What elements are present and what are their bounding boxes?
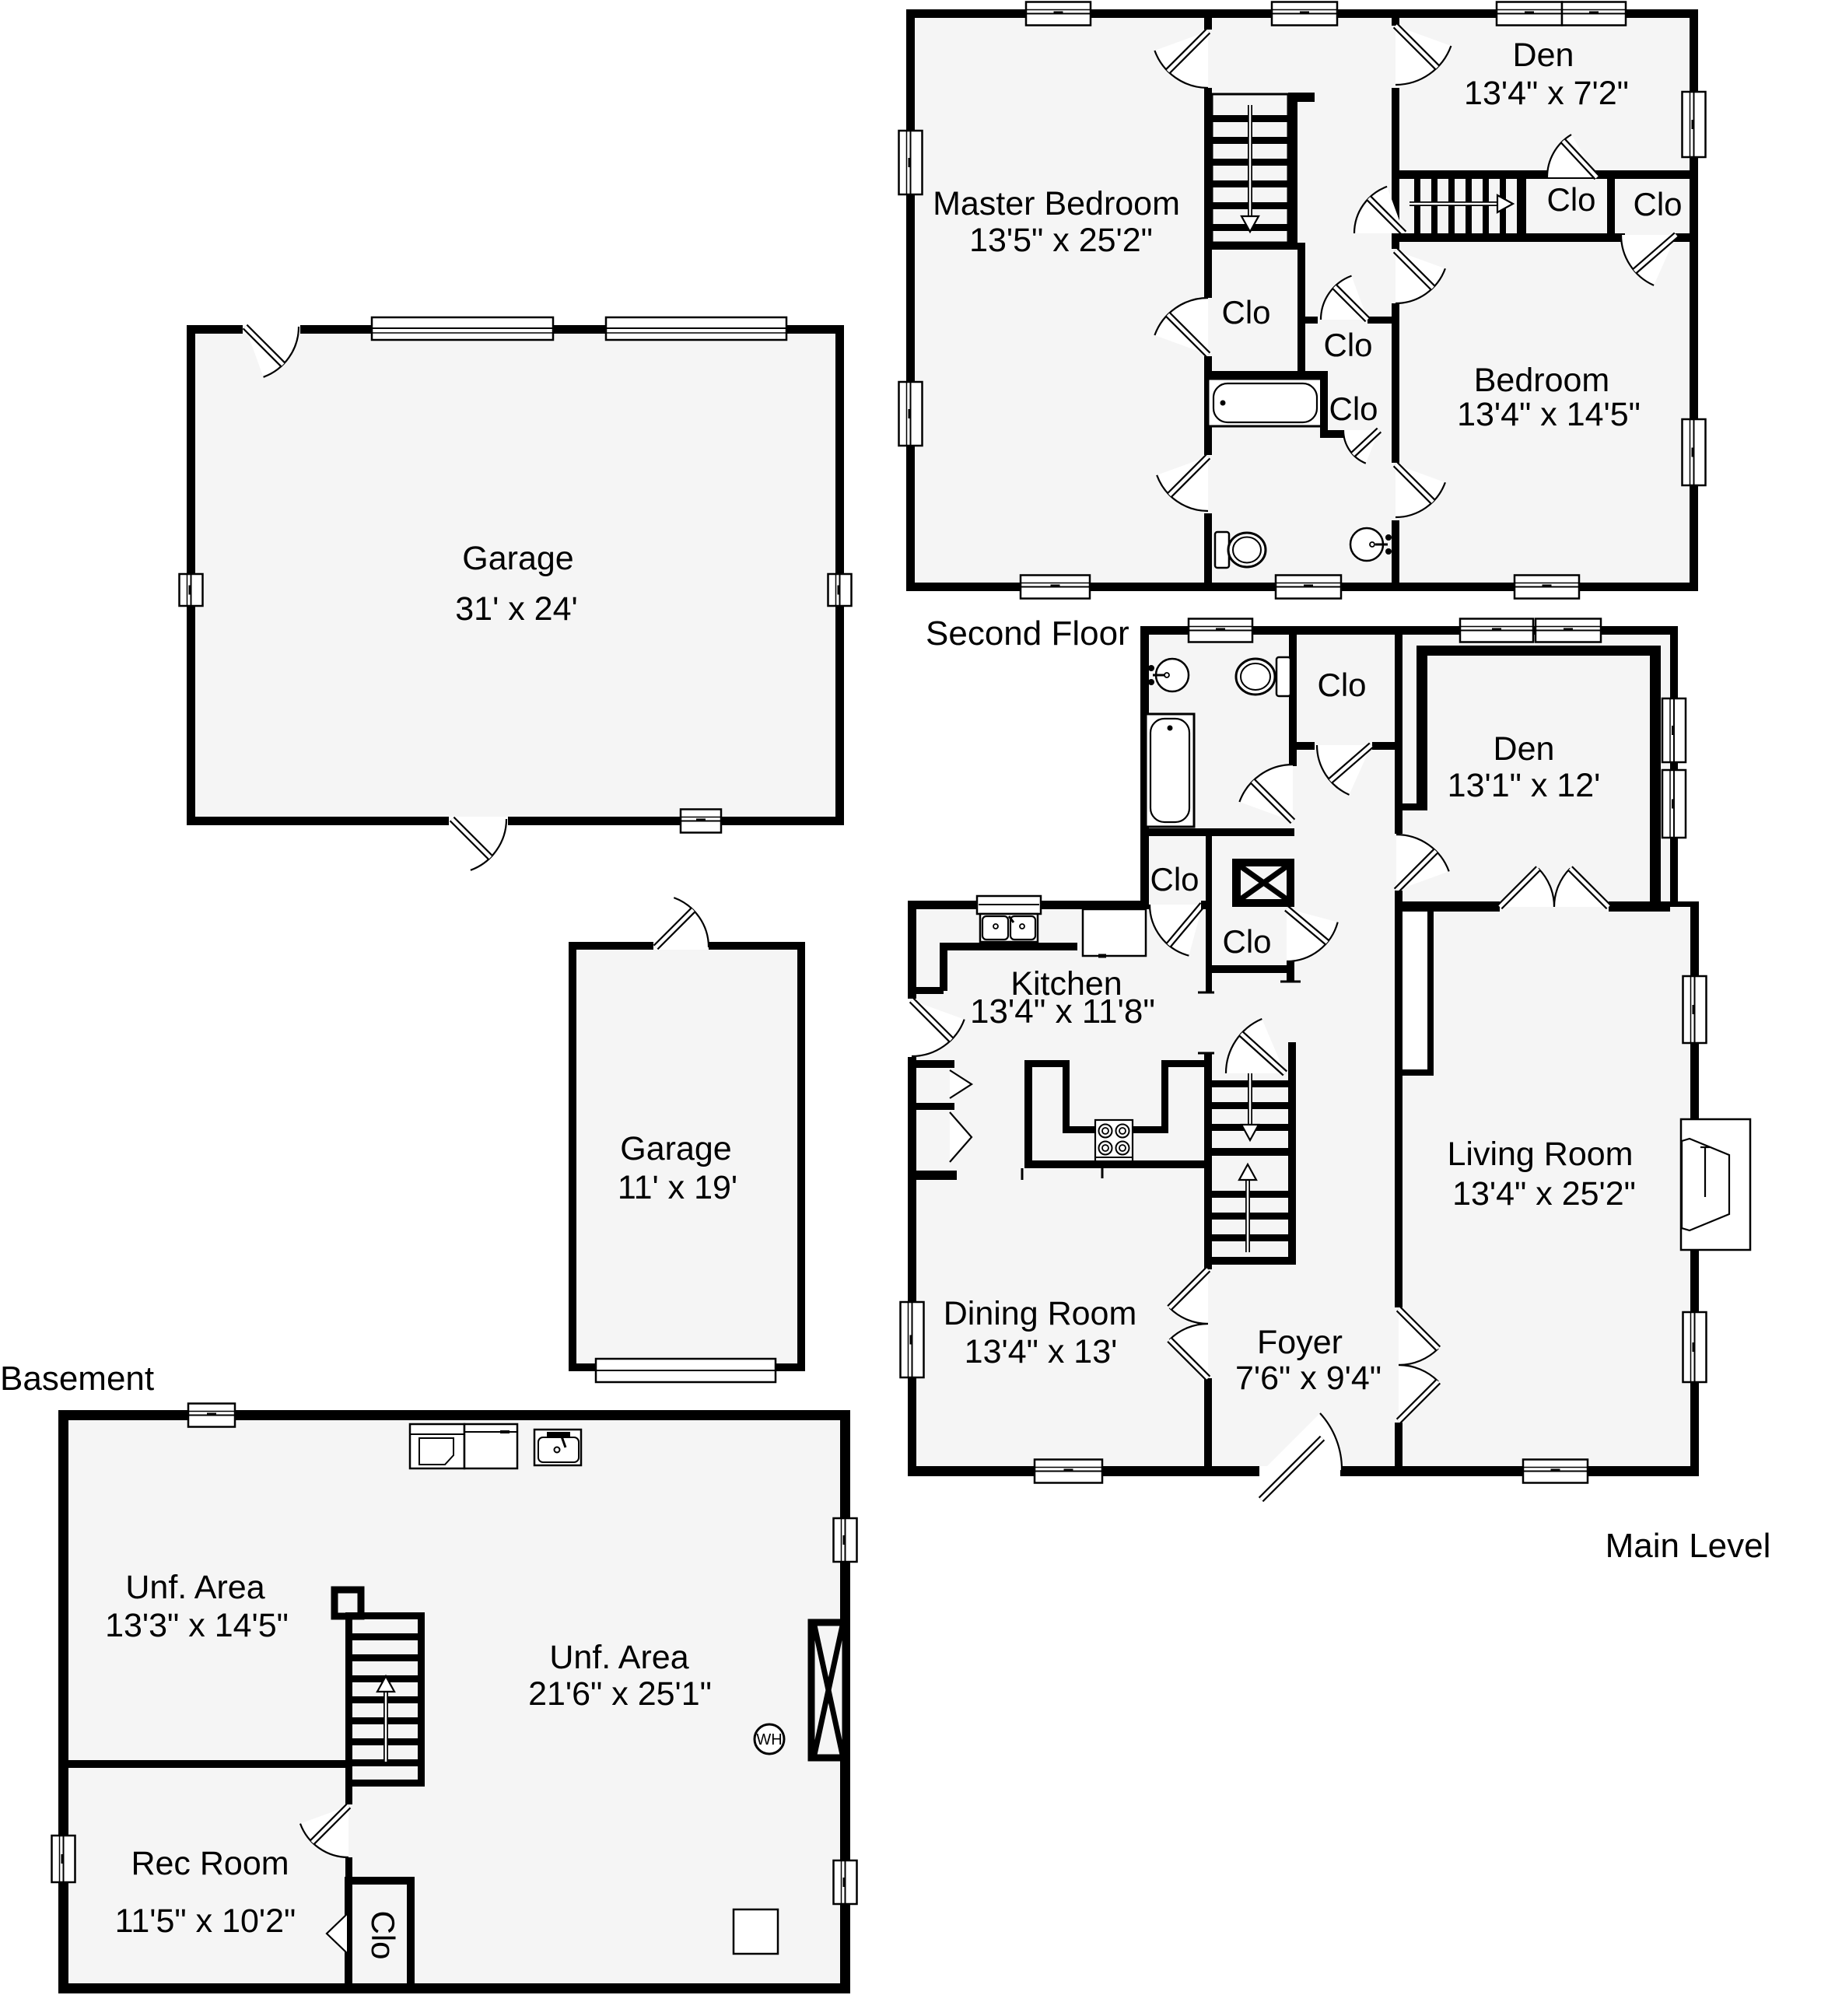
svg-text:Basement: Basement bbox=[0, 1360, 154, 1398]
svg-text:Second Floor: Second Floor bbox=[926, 614, 1129, 653]
svg-text:Living Room: Living Room bbox=[1448, 1136, 1634, 1173]
svg-text:Dining Room: Dining Room bbox=[944, 1295, 1137, 1332]
svg-text:Bedroom: Bedroom bbox=[1474, 362, 1609, 399]
svg-text:Clo: Clo bbox=[1222, 923, 1271, 960]
svg-text:Den: Den bbox=[1494, 730, 1555, 768]
svg-text:Clo: Clo bbox=[365, 1910, 401, 1959]
svg-text:Unf. Area: Unf. Area bbox=[549, 1639, 688, 1676]
svg-text:Clo: Clo bbox=[1633, 186, 1682, 222]
svg-text:11' x 19': 11' x 19' bbox=[618, 1169, 737, 1206]
svg-text:Clo: Clo bbox=[1546, 181, 1595, 218]
svg-text:WH: WH bbox=[756, 1731, 782, 1748]
svg-text:Clo: Clo bbox=[1323, 327, 1372, 363]
svg-text:13'5" x 25'2": 13'5" x 25'2" bbox=[969, 222, 1153, 259]
svg-text:31' x 24': 31' x 24' bbox=[455, 590, 577, 628]
svg-text:7'6" x 9'4": 7'6" x 9'4" bbox=[1235, 1360, 1382, 1397]
svg-text:Den: Den bbox=[1513, 37, 1574, 74]
svg-text:13'4" x 11'8": 13'4" x 11'8" bbox=[970, 992, 1155, 1031]
svg-text:13'4" x 25'2": 13'4" x 25'2" bbox=[1452, 1175, 1636, 1213]
svg-text:Clo: Clo bbox=[1150, 861, 1199, 898]
svg-text:13'3" x 14'5": 13'3" x 14'5" bbox=[105, 1607, 289, 1644]
svg-text:Clo: Clo bbox=[1329, 390, 1378, 427]
svg-text:Garage: Garage bbox=[462, 540, 573, 577]
svg-text:Master Bedroom: Master Bedroom bbox=[933, 185, 1180, 222]
svg-text:Clo: Clo bbox=[1317, 667, 1366, 703]
svg-text:13'4" x 14'5": 13'4" x 14'5" bbox=[1457, 396, 1641, 433]
svg-text:13'4" x 13': 13'4" x 13' bbox=[965, 1333, 1118, 1370]
svg-text:Main Level: Main Level bbox=[1606, 1527, 1771, 1565]
svg-text:13'1" x 12': 13'1" x 12' bbox=[1448, 767, 1601, 804]
svg-text:Rec Room: Rec Room bbox=[131, 1845, 289, 1882]
svg-text:Unf. Area: Unf. Area bbox=[125, 1569, 264, 1606]
svg-text:21'6" x 25'1": 21'6" x 25'1" bbox=[528, 1675, 712, 1713]
svg-text:Garage: Garage bbox=[620, 1130, 731, 1167]
svg-text:Foyer: Foyer bbox=[1257, 1324, 1343, 1361]
svg-text:Clo: Clo bbox=[1221, 294, 1270, 331]
svg-text:11'5" x 10'2": 11'5" x 10'2" bbox=[115, 1902, 296, 1940]
svg-text:13'4" x 7'2": 13'4" x 7'2" bbox=[1464, 75, 1629, 112]
